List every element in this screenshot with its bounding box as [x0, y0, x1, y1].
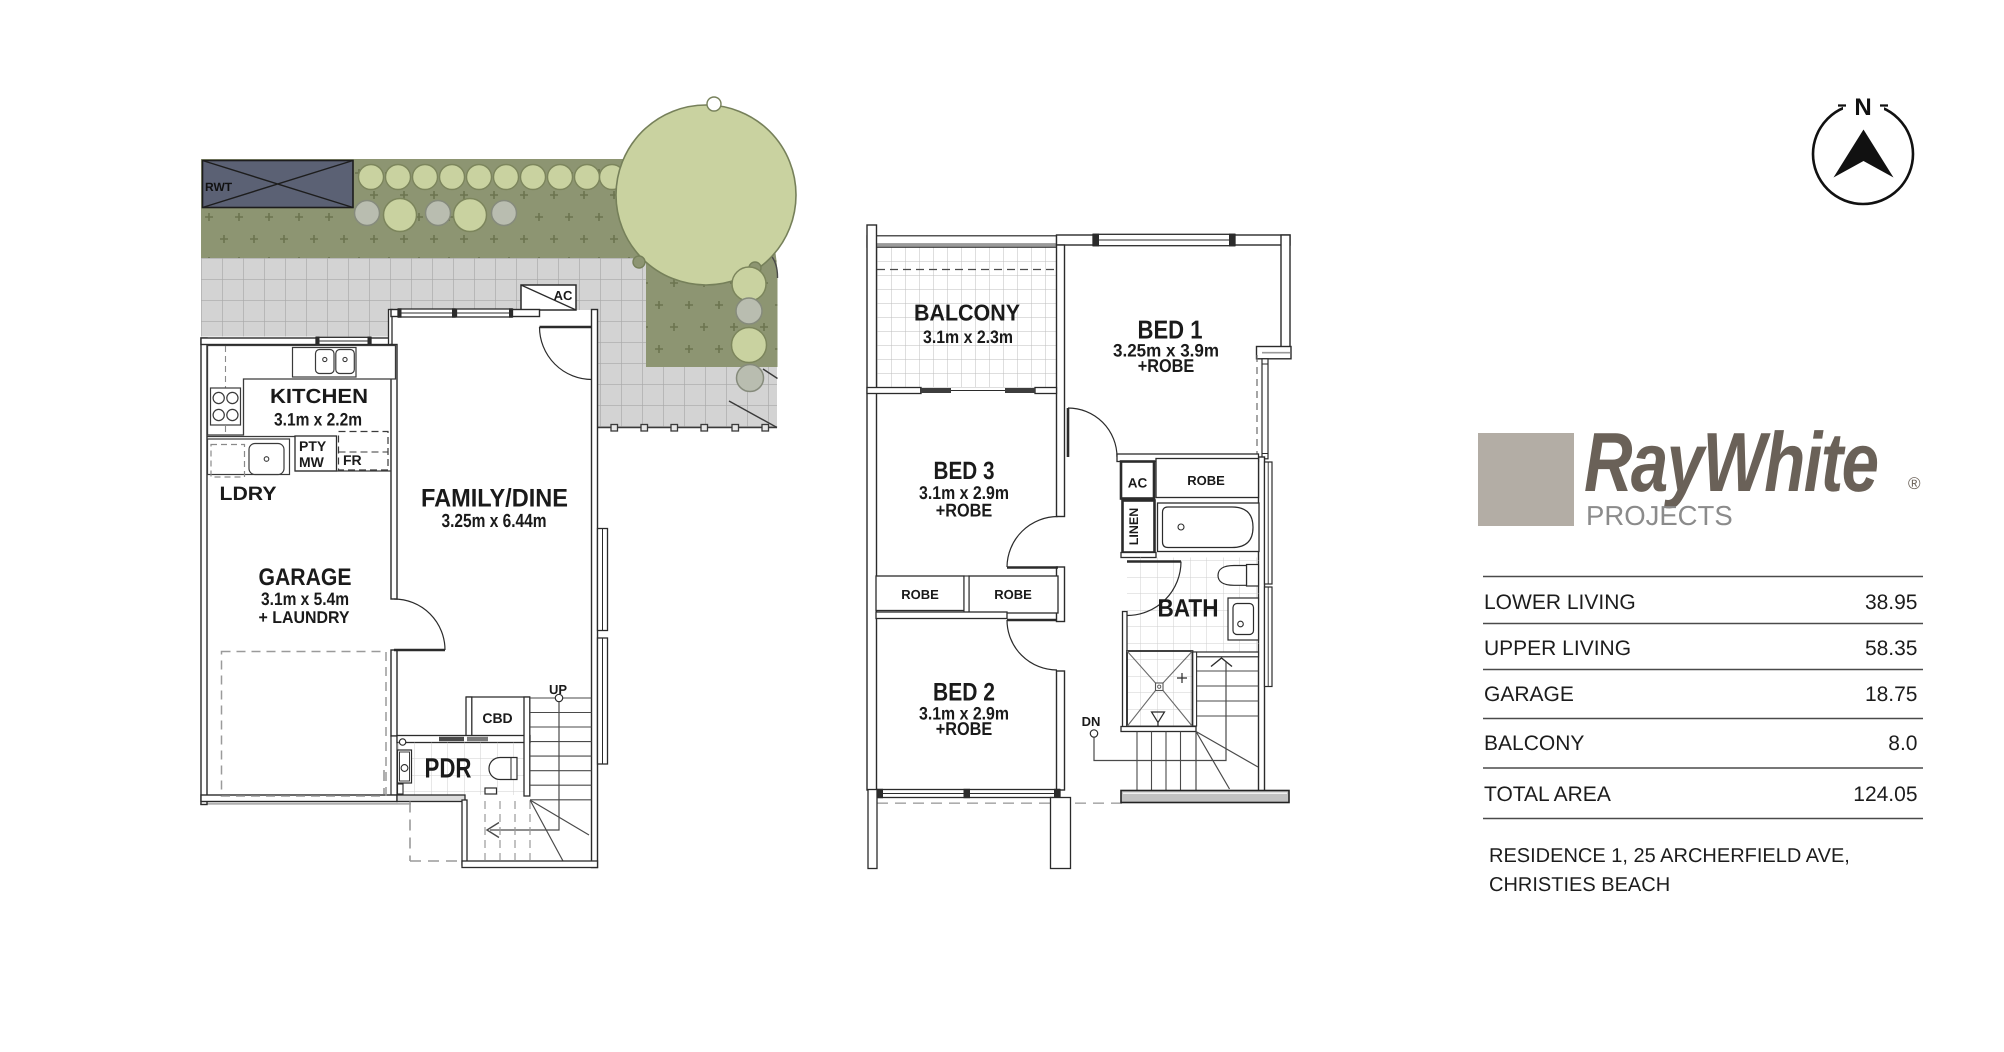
svg-text:FAMILY/DINE: FAMILY/DINE	[421, 485, 568, 513]
svg-text:CHRISTIES BEACH: CHRISTIES BEACH	[1489, 874, 1670, 896]
svg-text:RESIDENCE 1, 25 ARCHERFIELD AV: RESIDENCE 1, 25 ARCHERFIELD AVE,	[1489, 845, 1850, 867]
svg-text:FR: FR	[343, 452, 362, 468]
svg-text:BED 2: BED 2	[933, 679, 995, 707]
svg-text:+ROBE: +ROBE	[936, 718, 993, 739]
svg-text:ROBE: ROBE	[901, 587, 939, 602]
svg-text:3.1m x 2.3m: 3.1m x 2.3m	[923, 327, 1013, 347]
svg-text:8.0: 8.0	[1888, 732, 1917, 755]
svg-text:GARAGE: GARAGE	[259, 564, 352, 591]
svg-text:18.75: 18.75	[1865, 683, 1918, 706]
svg-text:GARAGE: GARAGE	[1484, 683, 1574, 706]
svg-text:KITCHEN: KITCHEN	[270, 385, 368, 408]
svg-text:UPPER LIVING: UPPER LIVING	[1484, 637, 1631, 660]
svg-text:BED 3: BED 3	[934, 457, 995, 485]
svg-text:58.35: 58.35	[1865, 637, 1918, 660]
svg-text:LOWER LIVING: LOWER LIVING	[1484, 591, 1636, 614]
svg-text:124.05: 124.05	[1853, 783, 1917, 806]
svg-text:BALCONY: BALCONY	[914, 300, 1020, 326]
svg-text:RayWhite: RayWhite	[1584, 415, 1878, 509]
svg-text:LDRY: LDRY	[220, 483, 277, 505]
svg-text:38.95: 38.95	[1865, 591, 1918, 614]
svg-text:CBD: CBD	[482, 710, 512, 726]
svg-text:3.1m x 2.2m: 3.1m x 2.2m	[274, 410, 362, 430]
svg-text:+ROBE: +ROBE	[936, 499, 993, 520]
svg-text:MW: MW	[299, 454, 325, 470]
svg-text:AC: AC	[554, 288, 573, 303]
svg-text:AC: AC	[1128, 476, 1148, 491]
svg-text:BALCONY: BALCONY	[1484, 732, 1584, 755]
svg-text:DN: DN	[1082, 714, 1101, 729]
svg-text:ROBE: ROBE	[1187, 473, 1225, 488]
svg-text:PTY: PTY	[299, 438, 327, 454]
svg-text:BATH: BATH	[1158, 595, 1219, 623]
svg-text:PDR: PDR	[425, 753, 472, 784]
svg-text:+ LAUNDRY: + LAUNDRY	[259, 608, 351, 627]
svg-text:PROJECTS: PROJECTS	[1586, 500, 1733, 531]
svg-text:3.25m x 6.44m: 3.25m x 6.44m	[442, 511, 547, 532]
svg-text:TOTAL AREA: TOTAL AREA	[1484, 783, 1611, 806]
svg-text:UP: UP	[549, 682, 567, 697]
svg-text:LINEN: LINEN	[1127, 508, 1141, 546]
svg-text:3.1m x 5.4m: 3.1m x 5.4m	[261, 589, 349, 609]
svg-text:N: N	[1854, 94, 1871, 121]
svg-text:+ROBE: +ROBE	[1138, 355, 1195, 376]
svg-text:®: ®	[1908, 474, 1921, 493]
svg-text:ROBE: ROBE	[994, 587, 1032, 602]
svg-text:RWT: RWT	[205, 180, 233, 194]
